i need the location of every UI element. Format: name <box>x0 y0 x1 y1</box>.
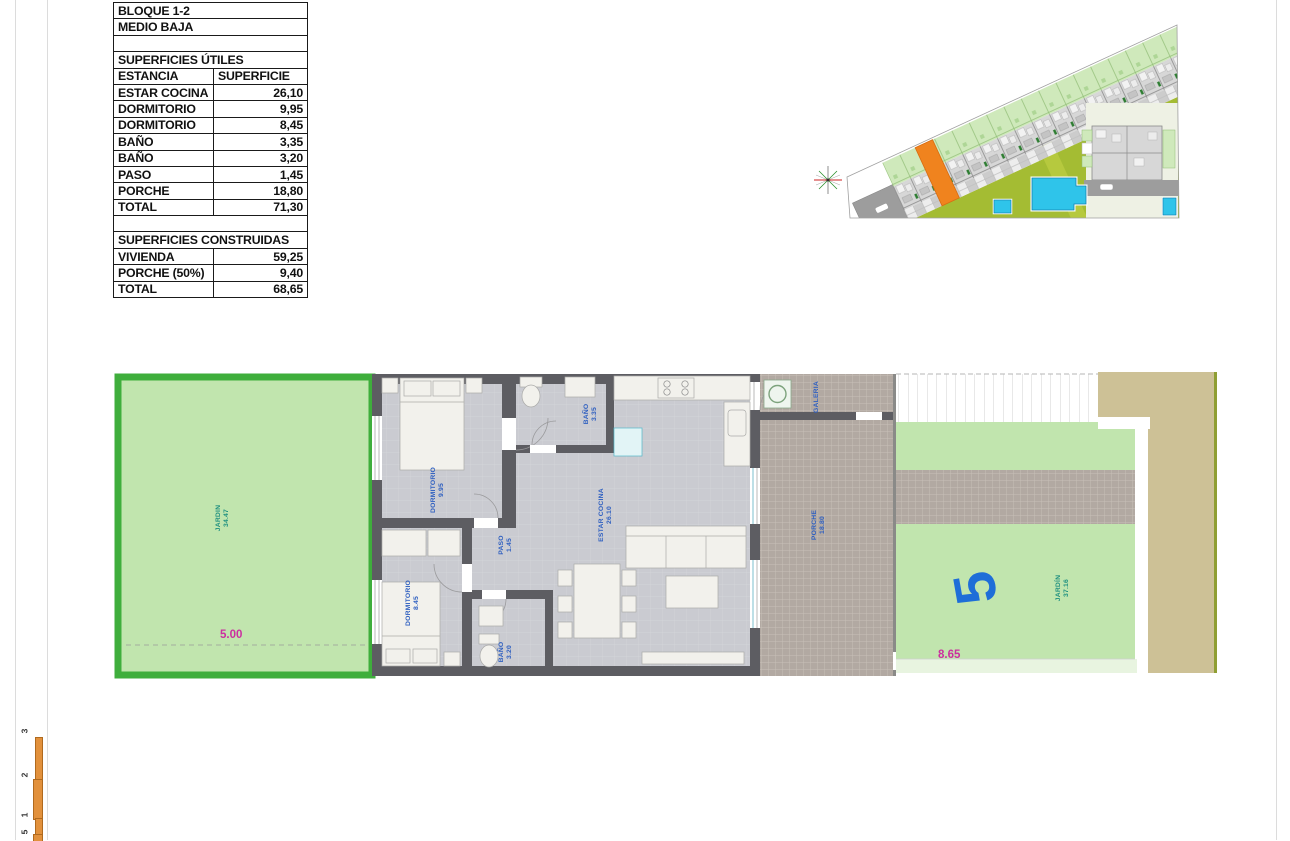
galeria-label: GALERIA <box>813 381 820 413</box>
table-cell <box>114 216 308 232</box>
site-plan <box>800 8 1240 233</box>
table-row: TOTAL68,65 <box>114 281 308 297</box>
table-cell: 1,45 <box>214 166 308 182</box>
room-jardin-right <box>896 524 1135 659</box>
table-cell: SUPERFICIES ÚTILES <box>114 52 308 68</box>
table-row: SUPERFICIES ÚTILES <box>114 52 308 68</box>
table-cell: 26,10 <box>214 84 308 100</box>
tiled-band <box>896 470 1135 524</box>
table-cell: 59,25 <box>214 248 308 264</box>
surfaces-table: BLOQUE 1-2MEDIO BAJASUPERFICIES ÚTILESES… <box>113 2 308 298</box>
bano1-label: BAÑO <box>581 404 590 425</box>
paso-label: PASO <box>498 535 505 555</box>
dormitorio2-label: DORMITORIO <box>405 580 412 626</box>
table-row: PORCHE18,80 <box>114 183 308 199</box>
table-row: BLOQUE 1-2 <box>114 3 308 19</box>
table-cell: ESTANCIA <box>114 68 214 84</box>
table-cell: PASO <box>114 166 214 182</box>
table-row <box>114 35 308 51</box>
porche-area: 18.80 <box>819 516 826 534</box>
estar-cocina-area: 26.10 <box>606 506 613 524</box>
table-cell: TOTAL <box>114 199 214 215</box>
table-row: DORMITORIO9,95 <box>114 101 308 117</box>
surfaces-table-wrap: BLOQUE 1-2MEDIO BAJASUPERFICIES ÚTILESES… <box>113 2 308 298</box>
table-cell: 3,35 <box>214 134 308 150</box>
sheet-frame-line-left2 <box>47 0 48 840</box>
pool-right <box>1163 198 1176 215</box>
paso-area: 1.45 <box>506 538 513 552</box>
table-cell: 9,40 <box>214 265 308 281</box>
floor-plan: JARDIN 34.47 5.00 <box>110 368 1225 686</box>
table-row: TOTAL71,30 <box>114 199 308 215</box>
table-cell: DORMITORIO <box>114 117 214 133</box>
bano1-area: 3.35 <box>591 407 598 421</box>
porche-label: PORCHE <box>811 510 818 541</box>
table-cell: ESTAR COCINA <box>114 84 214 100</box>
table-cell: SUPERFICIE <box>214 68 308 84</box>
table-cell: 9,95 <box>214 101 308 117</box>
garden-right-dimension: 8.65 <box>938 649 961 661</box>
table-row: MEDIO BAJA <box>114 19 308 35</box>
garden-strip-upper <box>896 422 1135 470</box>
garden-left-dimension: 5.00 <box>220 629 242 641</box>
dormitorio2-area: 8.45 <box>413 596 420 610</box>
scale-label-05: 5 <box>19 830 29 835</box>
car-icon <box>1100 184 1113 190</box>
table-cell: DORMITORIO <box>114 101 214 117</box>
scale-label-1: 1 <box>19 813 29 818</box>
jardin-right-label: JARDÍN <box>1053 575 1062 602</box>
table-cell: BAÑO <box>114 150 214 166</box>
table-row: VIVIENDA59,25 <box>114 248 308 264</box>
table-cell: 71,30 <box>214 199 308 215</box>
table-cell: BLOQUE 1-2 <box>114 3 308 19</box>
table-cell: PORCHE <box>114 183 214 199</box>
garden-edge-strip <box>896 659 1137 673</box>
jardin-left-area: 34.47 <box>223 509 230 527</box>
table-cell: MEDIO BAJA <box>114 19 308 35</box>
dormitorio1-label: DORMITORIO <box>430 467 437 513</box>
sheet-frame-line-right <box>1276 0 1277 840</box>
table-cell: SUPERFICIES CONSTRUIDAS <box>114 232 308 248</box>
table-cell: 68,65 <box>214 281 308 297</box>
scale-label-2: 2 <box>19 773 29 778</box>
sheet-frame-line-left <box>15 0 16 840</box>
jardin-right-area: 37.16 <box>1063 579 1070 597</box>
table-cell <box>114 35 308 51</box>
jardin-left-label: JARDIN <box>215 505 222 532</box>
dormitorio1-area: 9.95 <box>438 483 445 497</box>
table-cell: BAÑO <box>114 134 214 150</box>
table-row: ESTAR COCINA26,10 <box>114 84 308 100</box>
table-cell: VIVIENDA <box>114 248 214 264</box>
table-cell: 3,20 <box>214 150 308 166</box>
table-cell: 18,80 <box>214 183 308 199</box>
table-row: PASO1,45 <box>114 166 308 182</box>
table-row: PORCHE (50%)9,40 <box>114 265 308 281</box>
washing-machine-icon <box>764 380 791 408</box>
table-row: DORMITORIO8,45 <box>114 117 308 133</box>
table-cell: TOTAL <box>114 281 214 297</box>
table-row: BAÑO3,35 <box>114 134 308 150</box>
scale-label-3: 3 <box>19 729 29 734</box>
bano2-area: 3.20 <box>506 645 513 659</box>
bano2-label: BAÑO <box>496 642 505 663</box>
pergola-strip <box>896 374 1098 424</box>
room-jardin-left: JARDIN 34.47 5.00 <box>118 377 372 675</box>
table-cell: PORCHE (50%) <box>114 265 214 281</box>
table-cell: 8,45 <box>214 117 308 133</box>
estar-cocina-label: ESTAR COCINA <box>598 488 605 542</box>
compass-icon <box>814 166 842 194</box>
pool-small <box>994 200 1011 213</box>
table-row: ESTANCIASUPERFICIE <box>114 68 308 84</box>
table-row: SUPERFICIES CONSTRUIDAS <box>114 232 308 248</box>
table-row: BAÑO3,20 <box>114 150 308 166</box>
table-row <box>114 216 308 232</box>
